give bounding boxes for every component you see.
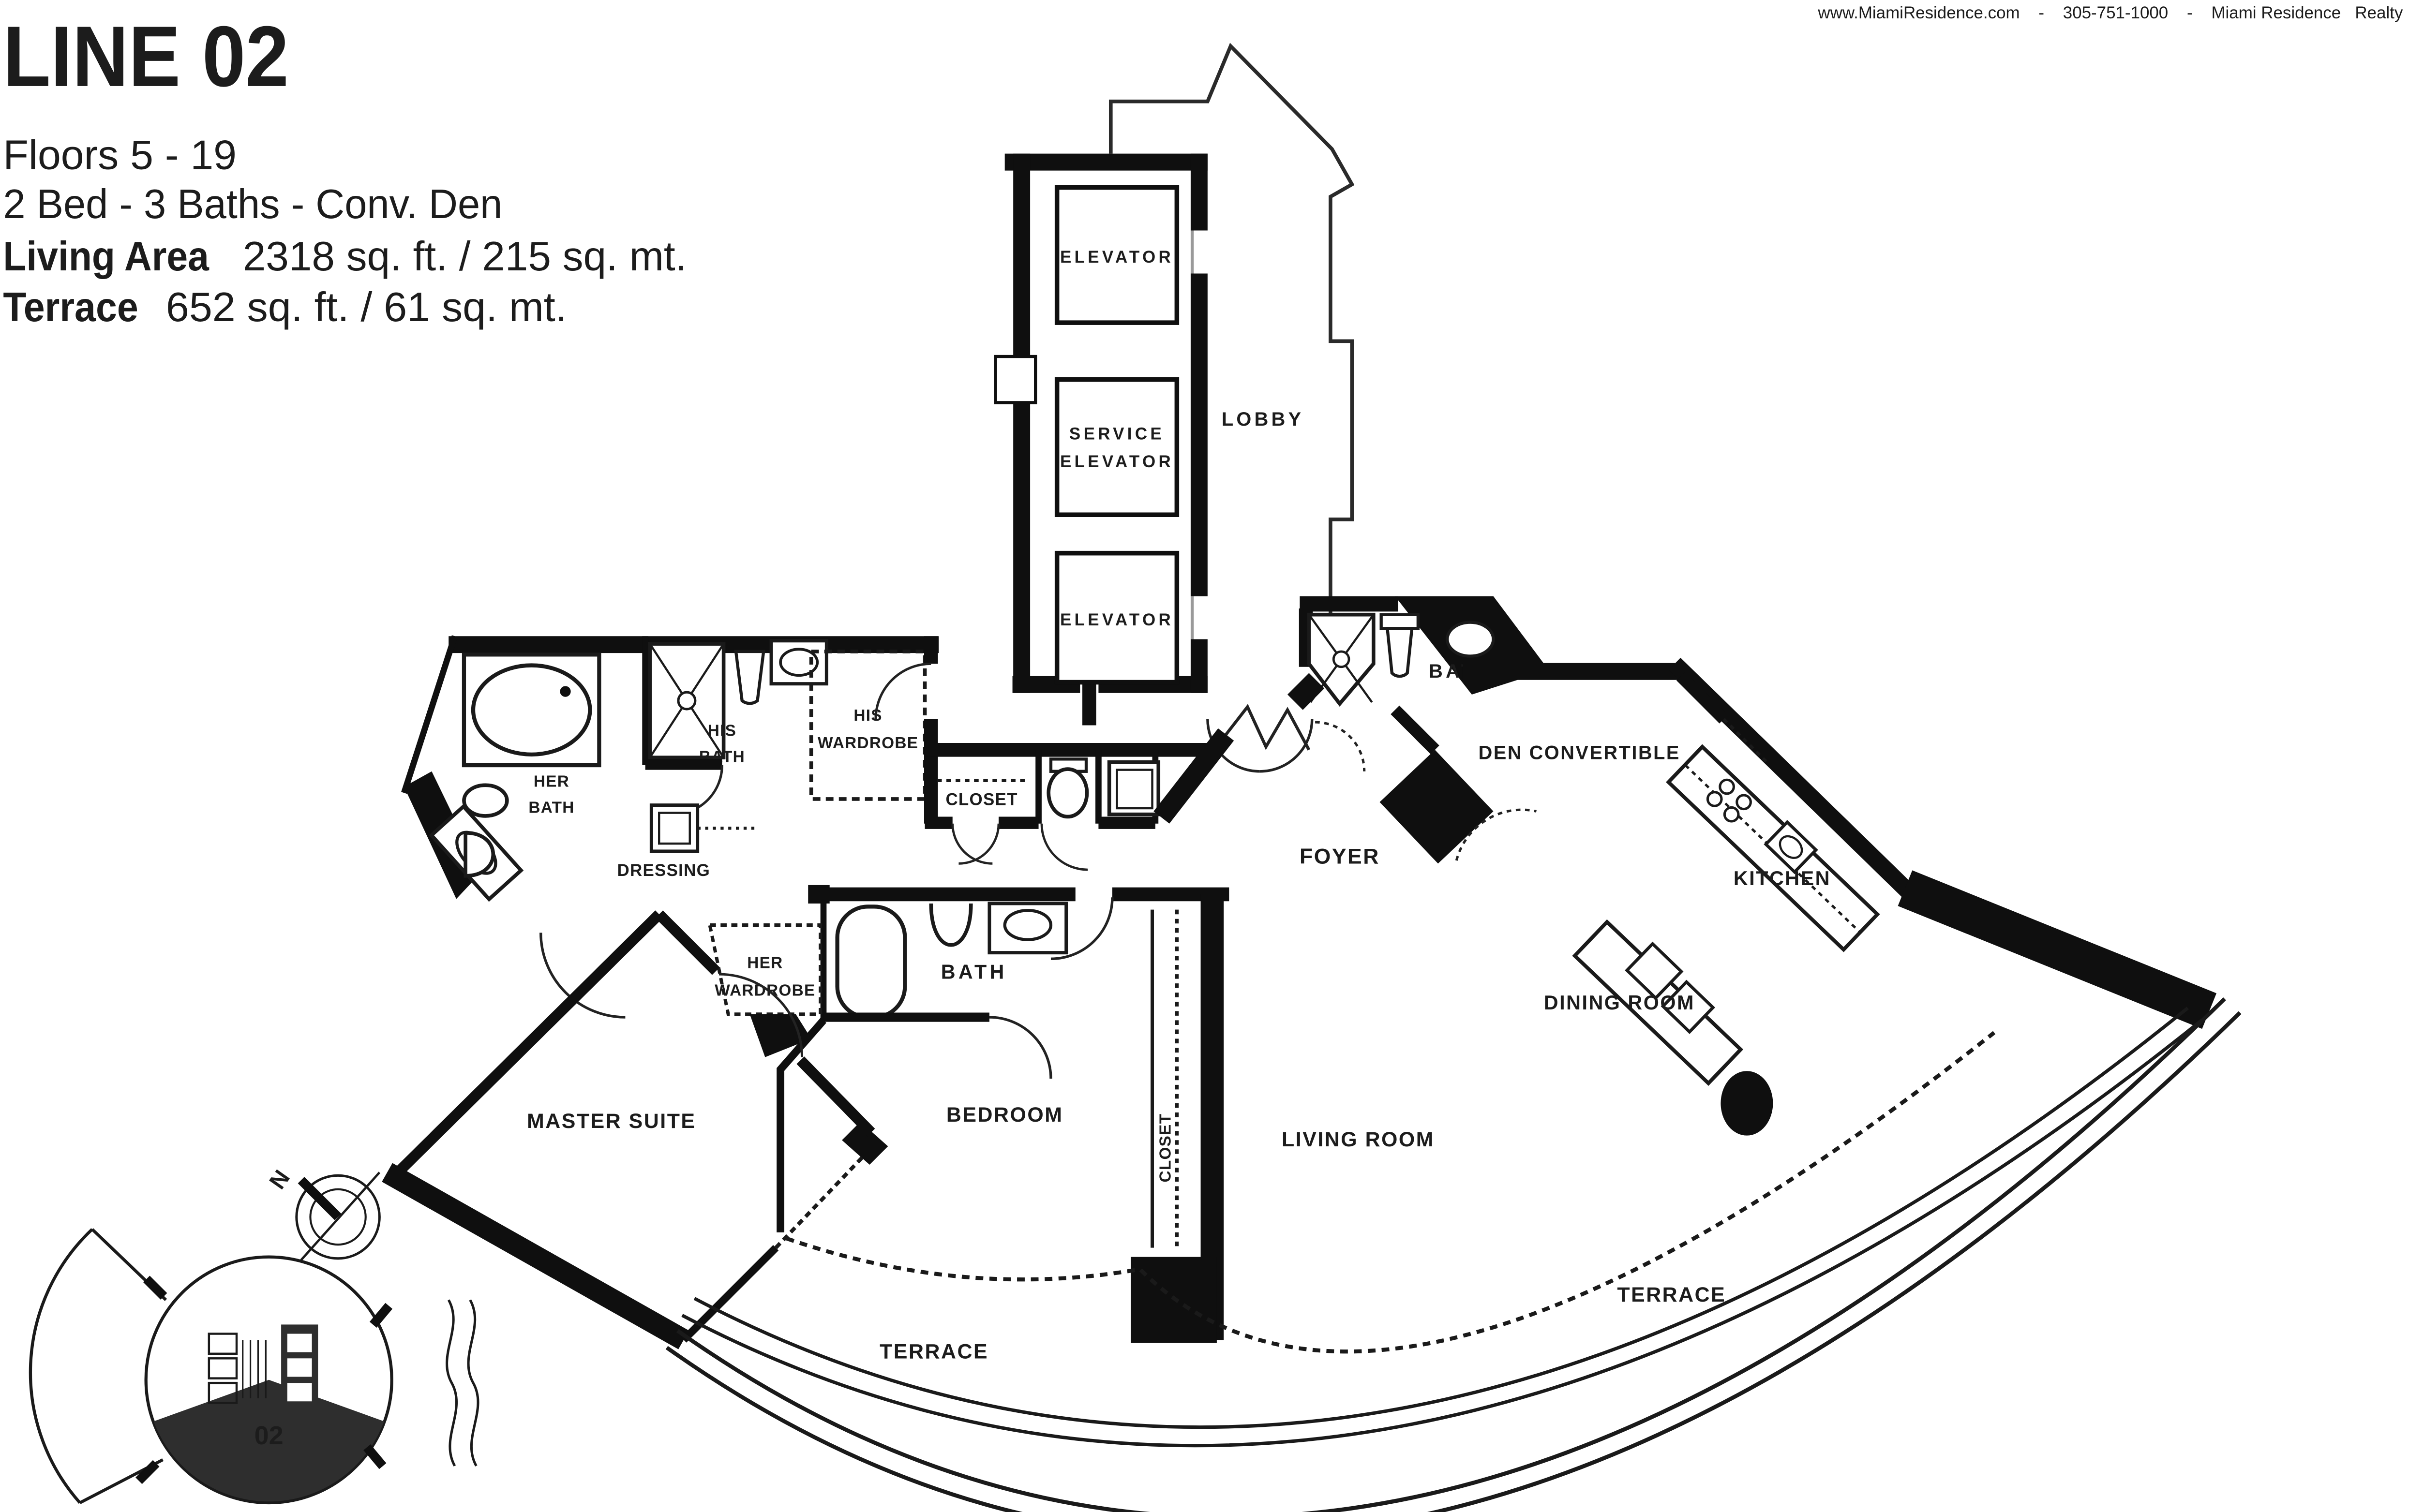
master-wall-ne-2 [800, 1060, 871, 1132]
her-bath-label-1: HER [534, 773, 569, 791]
column [1721, 1071, 1773, 1135]
master-wall-ne-1 [659, 914, 716, 971]
water-wave-2 [468, 1300, 478, 1466]
living-room-label: LIVING ROOM [1282, 1128, 1435, 1151]
keyplan-tick-1 [143, 1275, 167, 1299]
his-toilet-icon [736, 652, 763, 703]
cooktop-burner-3 [1707, 792, 1721, 806]
his-wardrobe-label-1: HIS [853, 707, 882, 725]
wing-wall-left [404, 636, 455, 793]
bathtub-icon [473, 666, 590, 755]
terrace-rail-outer-1 [677, 999, 2225, 1512]
terrace-rail-inner-2 [682, 1020, 2201, 1445]
master-wall-se-1 [684, 1248, 776, 1340]
kitchen: KITCHEN DINING ROOM [1544, 747, 2209, 1083]
keyplan-fan-arc [30, 1229, 92, 1502]
cooktop-burner-1 [1720, 780, 1734, 794]
his-bath-label-1: HIS [708, 722, 736, 740]
floors-line: Floors 5 - 19 [3, 132, 237, 178]
terrace-line: Terrace 652 sq. ft. / 61 sq. mt. [3, 284, 567, 330]
tub-drain-icon [560, 686, 570, 697]
cooktop-burner-2 [1737, 795, 1751, 809]
foyer-label: FOYER [1300, 845, 1380, 868]
terrace-right-label: TERRACE [1617, 1283, 1726, 1306]
master-suite-label: MASTER SUITE [527, 1110, 696, 1133]
water-wave-1 [447, 1300, 457, 1466]
exterior-wall-se [1905, 888, 2209, 1011]
keyplan-unit-label: 02 [254, 1421, 284, 1450]
floorplan-svg: LINE 02 Floors 5 - 19 2 Bed - 3 Baths - … [0, 0, 2409, 1512]
living-area-line: Living Area 2318 sq. ft. / 215 sq. mt. [3, 233, 687, 280]
floorplan-page: LINE 02 Floors 5 - 19 2 Bed - 3 Baths - … [0, 0, 2409, 1512]
title-block: LINE 02 Floors 5 - 19 2 Bed - 3 Baths - … [3, 8, 687, 330]
closet-door-arc-2 [958, 824, 999, 864]
upper-bath-sink-icon [1447, 623, 1493, 656]
terrace-value: 652 sq. ft. / 61 sq. mt. [166, 284, 567, 330]
closet-door-arc-1 [953, 824, 993, 864]
compass-needle-icon [301, 1180, 338, 1217]
living-area-value: 2318 sq. ft. / 215 sq. mt. [243, 233, 687, 280]
living-area-label: Living Area [3, 233, 209, 280]
master-suite: MASTER SUITE [387, 914, 888, 1340]
master-wall-nw [393, 914, 659, 1177]
den-bath: BATH DEN CONVERTIBLE [1287, 596, 1915, 898]
service-elevator-cab [1057, 380, 1177, 515]
service-elevator-label-1: SERVICE [1069, 425, 1165, 444]
dressing-door-arc [541, 933, 626, 1017]
keyplan-core-cell-2 [287, 1358, 312, 1377]
den-label: DEN CONVERTIBLE [1479, 742, 1680, 763]
contact-header: www.MiamiResidence.com - 305-751-1000 - … [1817, 3, 2403, 22]
page-title: LINE 02 [3, 8, 289, 104]
her-wardrobe: HER WARDROBE [710, 925, 821, 1057]
master-wall-sw [387, 1172, 684, 1340]
bedroom-closet-label: CLOSET [1157, 1113, 1175, 1183]
dressing-label: DRESSING [617, 861, 710, 880]
keyplan: 02 N [30, 1166, 478, 1503]
her-bath-label-2: BATH [528, 799, 574, 817]
elevator-bottom-label: ELEVATOR [1060, 610, 1174, 629]
compass-north-label: N [265, 1166, 295, 1194]
elevator-top-label: ELEVATOR [1060, 248, 1174, 267]
terrace-rail-inner-1 [694, 1008, 2187, 1427]
dining-room-label: DINING ROOM [1544, 992, 1695, 1014]
elevator-core: ELEVATOR SERVICE ELEVATOR ELEVATOR [996, 154, 1208, 726]
bedroom-door-arc [989, 1017, 1051, 1079]
wc-toilet-icon [1048, 769, 1087, 816]
closet-band: CLOSET [925, 707, 1309, 870]
terrace-left-label: TERRACE [880, 1340, 988, 1363]
service-vestibule [996, 356, 1036, 402]
her-toilet-icon [464, 785, 507, 816]
wardrobe-door-arc [876, 664, 931, 719]
cooktop-burner-4 [1724, 807, 1738, 821]
den-wall-stub [1395, 710, 1435, 750]
upper-toilet-tank [1381, 615, 1418, 629]
upper-shower-drain-icon [1333, 652, 1349, 667]
upper-toilet-icon [1387, 628, 1412, 676]
terrace: TERRACE TERRACE [667, 999, 2240, 1512]
bath2-toilet-icon [931, 904, 971, 945]
his-wardrobe-label-2: WARDROBE [818, 734, 918, 752]
kitchen-label: KITCHEN [1734, 867, 1831, 889]
keyplan-core-cell-3 [287, 1383, 312, 1401]
entry-zigzag [1226, 707, 1309, 750]
bath-foyer-door-arc [1315, 722, 1364, 771]
keyplan-core-cell-1 [287, 1334, 312, 1352]
wc-door-arc [1042, 824, 1088, 870]
shower-drain-icon [678, 692, 695, 709]
config-line: 2 Bed - 3 Baths - Conv. Den [3, 181, 502, 227]
terrace-glass-line [787, 1033, 1994, 1351]
her-wardrobe-label-2: WARDROBE [715, 982, 815, 1000]
her-wardrobe-label-1: HER [747, 954, 783, 972]
terrace-label: Terrace [3, 284, 138, 330]
bath2-label: BATH [941, 961, 1007, 983]
bath2-tub-icon [838, 906, 905, 1017]
keyplan-tick-3 [363, 1444, 386, 1469]
closet-label: CLOSET [945, 790, 1017, 809]
terrace-rail-outer-2 [667, 1013, 2240, 1512]
den-wall-block [1379, 750, 1493, 863]
lobby-label: LOBBY [1222, 409, 1304, 430]
service-elevator-label-2: ELEVATOR [1060, 452, 1174, 471]
bedroom-label: BEDROOM [946, 1103, 1063, 1127]
